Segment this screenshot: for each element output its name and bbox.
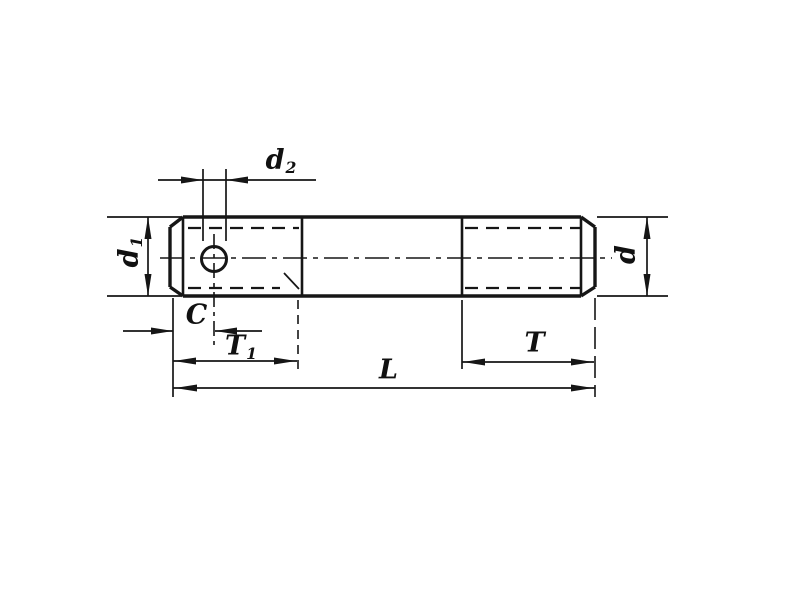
label-d1-base: d: [113, 248, 144, 268]
arrowhead-t1-left: [174, 358, 196, 365]
label-d1-sub: 1: [127, 237, 146, 248]
thread-runout-diagonal: [284, 273, 299, 289]
arrowhead-d-down: [644, 274, 651, 296]
arrowhead-d2-left: [181, 177, 203, 184]
technical-drawing-canvas: d2 d1 d C T1 T L: [0, 0, 800, 600]
right-chamfer-top: [581, 217, 595, 227]
label-t1-sub: 1: [246, 344, 257, 363]
stud-drawing: [0, 0, 800, 600]
arrowhead-l-right: [571, 385, 593, 392]
label-c-base: C: [186, 299, 209, 330]
arrowhead-d-up: [644, 217, 651, 239]
right-chamfer-bottom: [581, 287, 595, 296]
arrowhead-t-left: [463, 359, 485, 366]
arrowhead-t-right: [571, 359, 593, 366]
label-t1-base: T: [225, 330, 246, 361]
label-d1: d1: [115, 237, 144, 268]
label-c: C: [186, 301, 209, 330]
label-l: L: [379, 356, 399, 385]
label-d2-sub: 2: [285, 158, 296, 177]
label-t-base: T: [524, 327, 545, 358]
label-d: d: [612, 244, 641, 264]
label-t1: T1: [225, 332, 257, 361]
label-d-base: d: [610, 244, 641, 264]
arrowhead-d1-down: [145, 274, 152, 296]
label-t: T: [524, 329, 545, 358]
arrowhead-c-left: [151, 328, 173, 335]
label-l-base: L: [379, 354, 399, 385]
arrowhead-t1-right: [274, 358, 296, 365]
arrowhead-l-left: [175, 385, 197, 392]
arrowhead-d2-right: [226, 177, 248, 184]
left-chamfer-bottom: [170, 287, 183, 296]
label-d2-base: d: [266, 144, 286, 175]
left-chamfer-top: [170, 217, 183, 227]
label-d2: d2: [266, 146, 297, 175]
